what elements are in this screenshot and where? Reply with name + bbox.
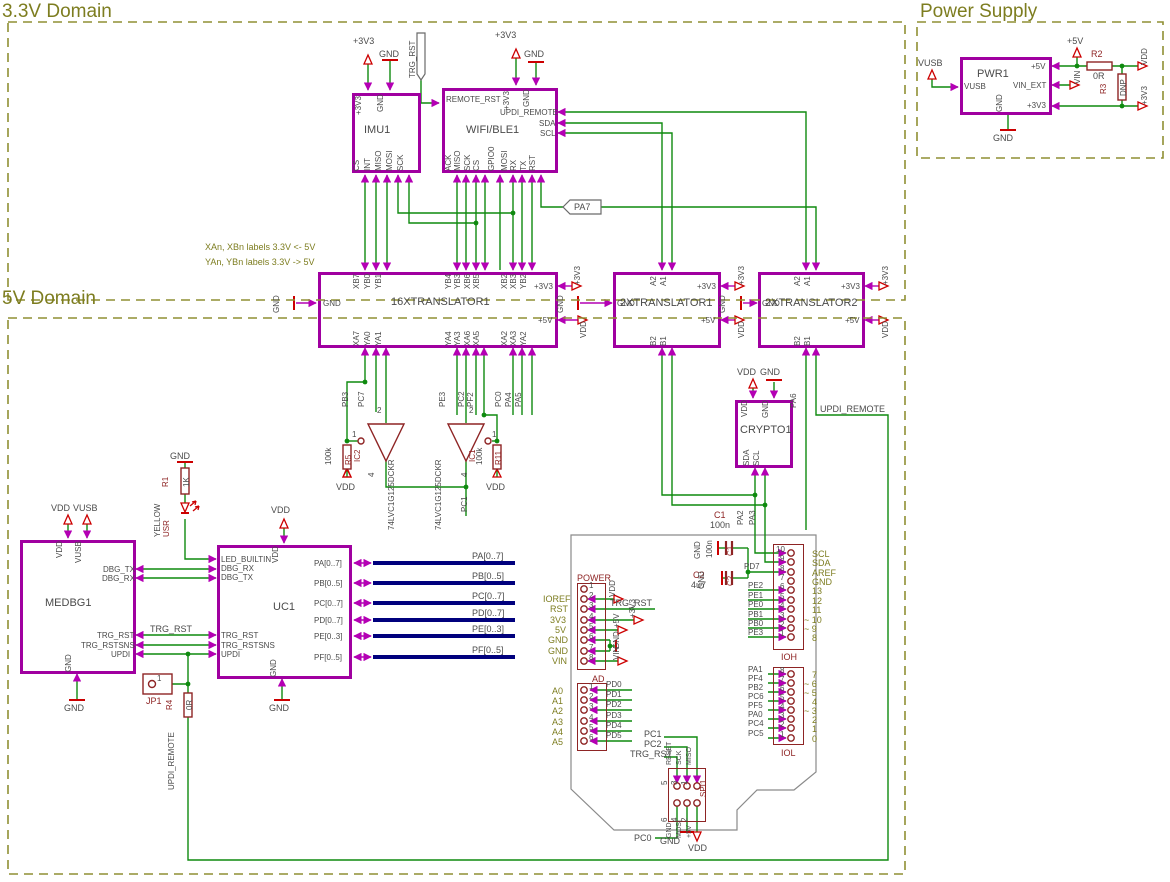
r3-ref: R3	[1099, 84, 1108, 94]
silk-gnd: GND	[548, 646, 568, 656]
trg-rst-flag-label: TRG_RST	[408, 41, 417, 78]
t16-top-pin: XB6	[463, 274, 472, 289]
power-header-ref: POWER	[577, 573, 611, 583]
pa7-flag-label: PA7	[574, 202, 590, 212]
uc-pin-pc: PC[0..7]	[314, 599, 343, 608]
t16-top-pin: YB1	[374, 274, 383, 289]
pwr-pin-gnd: GND	[995, 94, 1004, 112]
updi-remote-net-label: UPDI_REMOTE	[820, 404, 885, 414]
ioh-pin-num: 9	[780, 554, 784, 563]
silk-rst: RST	[550, 604, 568, 614]
jp1-ref: JP1	[146, 696, 162, 706]
silk-11: 11	[812, 605, 821, 615]
wifi-pin-cs: CS	[472, 160, 481, 171]
p3v3-label: +3V3	[353, 36, 374, 46]
ioh-pin-num: 8	[780, 564, 784, 573]
domain-title-5v: 5V Domain	[2, 289, 96, 309]
ic2-pin1-num: 1	[352, 430, 356, 439]
vusb-label: VUSB	[918, 58, 943, 68]
schematic-canvas: 3.3V Domain 5V Domain Power Supply XAn, …	[0, 0, 1170, 882]
imu-pin-mosi: MOSI	[385, 151, 394, 171]
uc-pin-pe: PE[0..3]	[314, 632, 342, 641]
t16-bot-pin: XA7	[352, 331, 361, 346]
led-symbol[interactable]	[181, 501, 199, 513]
t16-top-pin: XB7	[352, 274, 361, 289]
vusb-label: VUSB	[73, 503, 98, 513]
pa1-net-label: PA1	[748, 665, 763, 674]
gnd-flag-label: GND	[718, 295, 727, 313]
ioh-pin-num: 3	[780, 611, 784, 620]
gnd-label: GND	[660, 836, 680, 846]
led-ref: USR	[162, 520, 171, 537]
pwr-pin-3v3: +3V3	[1027, 101, 1046, 110]
medbg-ref: MEDBG1	[45, 597, 91, 609]
silk-a2: A2	[552, 706, 563, 716]
vdd-label: VDD	[737, 367, 756, 377]
imu-pin-sck: SCK	[396, 155, 405, 171]
t2a-pin-a1: A1	[659, 276, 668, 286]
gnd-flag-label: GND	[556, 295, 565, 313]
r5-ref: R5	[344, 455, 353, 465]
uc-pin-gnd: GND	[269, 659, 278, 677]
ioh-pin-num: 10	[776, 545, 785, 554]
silk-a4: A4	[552, 727, 563, 737]
silk-1: 1	[812, 724, 817, 734]
crypto-pin-scl: SCL	[752, 450, 761, 466]
t2b-pin-a1: A1	[803, 276, 812, 286]
t16-pin-gnd: GND	[323, 299, 341, 308]
pd5-net-label: PD5	[606, 731, 622, 740]
ad-pin-num: 1	[589, 682, 593, 691]
medbg-pin-trgrstsns: TRG_RSTSNS	[81, 641, 135, 650]
t16-bot-pin: YA2	[519, 331, 528, 346]
jp1-pad	[149, 681, 156, 688]
power-pin-num: 6	[589, 632, 593, 641]
silk-a5: A5	[552, 737, 563, 747]
pwr-pin-vinext: VIN_EXT	[1013, 81, 1046, 90]
power-pin-num: 5	[589, 622, 593, 631]
pf2-net-label: PF2	[466, 392, 475, 407]
crypto-pin-sda: SDA	[742, 450, 751, 466]
t2b-pin-5v: +5V	[845, 316, 859, 325]
pc1-net-label: PC1	[460, 496, 469, 512]
ioh-pin-num: 5	[780, 592, 784, 601]
r5-value: 100k	[324, 448, 333, 465]
vdd-label: VDD	[688, 843, 707, 853]
medbg-pin-gnd: GND	[64, 654, 73, 672]
ic2-pin4-num: 4	[367, 473, 376, 477]
p5v-flag-label: +5V	[612, 614, 621, 628]
ad-pin-num: 6	[589, 733, 593, 742]
gnd-flag-label: GND	[697, 571, 706, 589]
r2-ref: R2	[1091, 49, 1103, 59]
r1-ref: R1	[161, 477, 170, 487]
r2-value: 0R	[1093, 71, 1105, 81]
pa5-net-label: PA5	[514, 392, 523, 407]
ioh-pin-num: 7	[780, 573, 784, 582]
ad-header-ref: AD	[592, 674, 605, 684]
ic1-pin2-num: 2	[469, 406, 473, 415]
p3v3-flag-label: +3V3	[573, 266, 582, 285]
power-pin-num: 7	[589, 643, 593, 652]
bus-label-pe: PE[0..3]	[472, 624, 504, 634]
pc7-net-label: PC7	[357, 391, 366, 407]
pb1-net-label: PB1	[748, 610, 763, 619]
vdd-label: VDD	[271, 505, 290, 515]
vdd-label: VDD	[486, 482, 505, 492]
crypto-pin-gnd: GND	[761, 400, 770, 418]
t2b-pin-b2: B2	[793, 336, 802, 346]
c1-value-rot: 100n	[705, 540, 714, 558]
resistor-r2[interactable]	[1087, 62, 1112, 70]
vdd-label: VDD	[51, 503, 70, 513]
p3v3-flag-label: +3V3	[628, 599, 637, 618]
trg-rst-net-label: TRG_RST	[150, 624, 192, 634]
iol-pin-num: 1	[780, 730, 784, 739]
silk-vin: VIN	[552, 656, 567, 666]
wifi-pin-miso: MISO	[453, 151, 462, 171]
medbg-pin-vusb: VUSB	[74, 541, 83, 563]
t16-bot-pin: XA3	[509, 331, 518, 346]
medbg-pin-vdd: VDD	[55, 541, 64, 558]
gnd-flag-label: GND	[272, 295, 281, 313]
pc2-net-label: PC2	[644, 739, 662, 749]
p3v3-flag-label: +3V3	[881, 266, 890, 285]
ioh-pin-num: 6	[780, 582, 784, 591]
ioh-pin-num: 2	[780, 620, 784, 629]
power-pin-num: 2	[589, 591, 593, 600]
iol-header[interactable]	[773, 667, 804, 745]
bus-label-pd: PD[0..7]	[472, 608, 505, 618]
t16-top-pin: XB5	[472, 274, 481, 289]
power-pin-num: 1	[589, 581, 593, 590]
r11-ref: R11	[494, 451, 503, 465]
t16-top-pin: YB2	[519, 274, 528, 289]
wifi-pin-ack: ACK	[444, 155, 453, 171]
pc0-net-label: PC0	[494, 391, 503, 407]
c1-ref-rot: C1	[726, 546, 735, 556]
uc-pin-ledbuiltin: LED_BUILTIN	[221, 555, 271, 564]
pwr-pin-vusb: VUSB	[964, 82, 986, 91]
t2a-pin-b1: B1	[659, 336, 668, 346]
wifi-pin-gnd: GND	[522, 89, 531, 107]
uc-pin-pf: PF[0..5]	[314, 653, 342, 662]
ic1-pin1-num: 1	[492, 430, 496, 439]
wifi-pin-mosi: MOSI	[500, 151, 509, 171]
t2a-pin-gnd: GND	[617, 299, 635, 308]
silk-a1: A1	[552, 696, 563, 706]
pb3-net-label: PB3	[341, 392, 350, 407]
spi-pin1: 1	[680, 781, 689, 785]
t16-pin-3v3: +3V3	[534, 282, 553, 291]
wifi-ref: WIFI/BLE1	[466, 124, 519, 136]
t16-top-pin: XB3	[509, 274, 518, 289]
r1-value: 1K	[182, 477, 191, 487]
led-color: YELLOW	[153, 504, 162, 537]
wifi-pin-remote-rst: REMOTE_RST	[446, 95, 501, 104]
imu-pin-3v3: +3V3	[354, 96, 363, 115]
pb2-net-label: PB2	[748, 683, 763, 692]
c1-value: 100n	[710, 520, 730, 530]
pwr-pin-5v: +5V	[1031, 62, 1045, 71]
pe0-net-label: PE0	[748, 600, 763, 609]
uc-pin-pa: PA[0..7]	[314, 559, 342, 568]
trg-rst-net-label: TRG_RST	[630, 749, 672, 759]
t16-top-pin: YB4	[444, 274, 453, 289]
pd7-net-label: PD7	[744, 562, 760, 571]
ioh-pin-num: 1	[780, 629, 784, 638]
ioh-header-ref: IOH	[781, 652, 797, 662]
pc6-net-label: PC6	[748, 692, 764, 701]
uc-pin-trgrstsns: TRG_RSTSNS	[221, 641, 275, 650]
t2b-pin-gnd: GND	[762, 299, 780, 308]
crypto-ref: CRYPTO1	[740, 424, 792, 436]
pwr-ref: PWR1	[977, 68, 1009, 80]
crypto-pin-vdd: VDD	[740, 400, 749, 417]
wifi-pin-updi-remote: UPDI_REMOTE	[500, 108, 558, 117]
wifi-pin-scl: SCL	[540, 129, 556, 138]
part-graphics	[143, 62, 1126, 806]
bus-label-pa: PA[0..7]	[472, 551, 503, 561]
ioh-pin-num: 4	[780, 601, 784, 610]
note-xab: XAn, XBn labels 3.3V <- 5V	[205, 242, 315, 252]
power-pin-num: 4	[589, 612, 593, 621]
jp1-pin1: 1	[157, 674, 161, 683]
imu-pin-gnd: GND	[376, 94, 385, 112]
pd0-net-label: PD0	[606, 680, 622, 689]
ad-pin-num: 4	[589, 713, 593, 722]
iol-pin-num: 8	[780, 666, 784, 675]
t2a-pin-b2: B2	[649, 336, 658, 346]
vdd-flag-label: VDD	[881, 321, 890, 338]
silk-a3: A3	[552, 717, 563, 727]
gnd-label: GND	[524, 49, 544, 59]
uc-pin-pb: PB[0..5]	[314, 579, 342, 588]
ad-pin-num: 3	[589, 702, 593, 711]
vdd-flag-label: VDD	[737, 321, 746, 338]
silk-8: 8	[812, 633, 817, 643]
uc-ref: UC1	[273, 601, 295, 613]
uc-pin-vdd: VDD	[271, 546, 280, 563]
medbg-pin-trgrst: TRG_RST	[97, 631, 134, 640]
t16-bot-pin: YA3	[453, 331, 462, 346]
ic2-ref: IC2	[353, 450, 362, 462]
power-pin-num: 3	[589, 601, 593, 610]
silk-gnd: GND	[548, 635, 568, 645]
pa4-net-label: PA4	[504, 392, 513, 407]
silk-5v: 5V	[555, 625, 566, 635]
t16-top-pin: YB3	[453, 274, 462, 289]
wifi-pin-sck: SCK	[463, 155, 472, 171]
pa6-net-label: PA6	[789, 393, 798, 408]
wifi-pin-rst: RST	[528, 155, 537, 171]
silk-ioref: IOREF	[543, 594, 571, 604]
ad-pin-num: 2	[589, 692, 593, 701]
pf5-net-label: PF5	[748, 701, 763, 710]
silk-sda: SDA	[812, 558, 831, 568]
gnd-flag-label: GND	[693, 541, 702, 559]
domain-title-psu: Power Supply	[920, 2, 1037, 22]
c2-ref-rot: C2	[726, 576, 735, 586]
note-yab: YAn, YBn labels 3.3V -> 5V	[205, 257, 315, 267]
spi-sig-sck: SCK	[676, 751, 684, 765]
r3-value: DNP	[1119, 79, 1128, 96]
r11-value: 100k	[475, 448, 484, 465]
spi-pin3: 3	[670, 781, 679, 785]
p3v3-label: +3V3	[495, 30, 516, 40]
pa2-net-label: PA2	[736, 510, 745, 525]
gnd-label: GND	[269, 703, 289, 713]
t16-ref: 16XTRANSLATOR1	[391, 296, 490, 308]
t2b-pin-b1: B1	[803, 336, 812, 346]
ic2-part: 74LVC1G125DCKR	[387, 459, 396, 530]
t2b-pin-a2: A2	[793, 276, 802, 286]
wifi-pin-tx: TX	[519, 161, 528, 171]
gnd-label: GND	[64, 703, 84, 713]
medbg-pin-updi: UPDI	[111, 650, 130, 659]
vdd-flag-label: VDD	[579, 321, 588, 338]
gnd-label: GND	[760, 367, 780, 377]
t16-top-pin: YB0	[363, 274, 372, 289]
imu-pin-miso: MISO	[374, 151, 383, 171]
pa3-net-label: PA3	[748, 510, 757, 525]
medbg-pin-dbgrx: DBG_RX	[102, 574, 135, 583]
imu-ref: IMU1	[364, 124, 390, 136]
pd1-net-label: PD1	[606, 690, 622, 699]
medbg-pin-dbgtx: DBG_TX	[103, 565, 135, 574]
iol-pin-num: 2	[780, 720, 784, 729]
vin-flag-label: VIN	[1073, 71, 1082, 84]
trg-rst-flag	[417, 33, 425, 80]
vdd-flag-label: VDD	[608, 580, 617, 597]
r4-value: 0R	[185, 700, 194, 710]
ic1-pin4-num: 4	[460, 473, 469, 477]
bus-label-pb: PB[0..5]	[472, 571, 504, 581]
iol-pin-num: 3	[780, 711, 784, 720]
pe3-net-label: PE3	[438, 392, 447, 407]
vin-flag-label: VIN	[612, 647, 621, 660]
pf4-net-label: PF4	[748, 674, 763, 683]
pc0-net-label: PC0	[634, 833, 652, 843]
silk-3v3: 3V3	[550, 615, 566, 625]
bus-label-pc: PC[0..7]	[472, 591, 505, 601]
p5v-label: +5V	[1067, 36, 1083, 46]
vdd-label: VDD	[336, 482, 355, 492]
iol-pin-num: 7	[780, 675, 784, 684]
pe1-net-label: PE1	[748, 591, 763, 600]
t16-bot-pin: YA1	[374, 331, 383, 346]
uc-pin-updi: UPDI	[221, 650, 240, 659]
ic2-pin2-num: 2	[377, 406, 381, 415]
pd3-net-label: PD3	[606, 711, 622, 720]
pe3-net-label: PE3	[748, 628, 763, 637]
t2a-pin-3v3: +3V3	[697, 282, 716, 291]
uc-pin-dbgrx: DBG_RX	[221, 564, 254, 573]
ic1-oe-bubble	[485, 438, 491, 444]
power-pin-num: 8	[589, 653, 593, 662]
pa0-net-label: PA0	[748, 710, 763, 719]
spi-sig-miso: MISO	[686, 747, 694, 765]
t16-bot-pin: YA0	[363, 331, 372, 346]
pc5-net-label: PC5	[748, 729, 764, 738]
vdd-flag-label: VDD	[1140, 48, 1149, 65]
silk-0: 0	[812, 734, 817, 744]
spi-pin5: 5	[660, 781, 669, 785]
ad-pin-num: 5	[589, 723, 593, 732]
imu-pin-cs: CS	[352, 160, 361, 171]
updi-remote-net-label: UPDI_REMOTE	[167, 732, 176, 790]
pb0-net-label: PB0	[748, 619, 763, 628]
imu-pin-int: INT	[363, 158, 372, 171]
t16-bot-pin: XA5	[472, 331, 481, 346]
wifi-pin-gpio0: GPIO0	[487, 147, 496, 171]
pe2-net-label: PE2	[748, 581, 763, 590]
t2b-pin-3v3: +3V3	[841, 282, 860, 291]
ioh-header[interactable]	[773, 544, 804, 650]
ic1-part: 74LVC1G125DCKR	[434, 459, 443, 530]
t16-top-pin: XB2	[500, 274, 509, 289]
uc-pin-dbgtx: DBG_TX	[221, 573, 253, 582]
t2a-pin-5v: +5V	[701, 316, 715, 325]
t16-bot-pin: YA4	[444, 331, 453, 346]
domain-title-3v3: 3.3V Domain	[2, 2, 112, 22]
gnd-label: GND	[170, 451, 190, 461]
wifi-pin-sda: SDA	[539, 119, 555, 128]
p3v3-flag-label: +3V3	[1140, 86, 1149, 105]
pd4-net-label: PD4	[606, 721, 622, 730]
pc2-net-label: PC2	[457, 391, 466, 407]
silk-13: 13	[812, 586, 822, 596]
iol-pin-num: 6	[780, 684, 784, 693]
t16-bot-pin: XA6	[463, 331, 472, 346]
pc1-net-label: PC1	[644, 729, 662, 739]
pd2-net-label: PD2	[606, 700, 622, 709]
wifi-pin-rx: RX	[509, 160, 518, 171]
buffer-ic2[interactable]	[368, 424, 404, 461]
pc4-net-label: PC4	[748, 719, 764, 728]
iol-pin-num: 5	[780, 693, 784, 702]
ic2-oe-bubble	[358, 438, 364, 444]
spi-header-ref: SPI1	[699, 780, 708, 797]
c1-ref: C1	[714, 510, 726, 520]
bus-label-pf: PF[0..5]	[472, 645, 504, 655]
silk-a0: A0	[552, 686, 563, 696]
iol-header-ref: IOL	[781, 748, 796, 758]
p3v3-flag-label: +3V3	[737, 266, 746, 285]
spi-pin6: 6	[660, 818, 669, 822]
iol-pin-num: 4	[780, 702, 784, 711]
r4-ref: R4	[165, 700, 174, 710]
t16-pin-5v: +5V	[538, 316, 552, 325]
t16-bot-pin: XA2	[500, 331, 509, 346]
gnd-label: GND	[993, 133, 1013, 143]
spi-sig-vcc: +5V	[686, 825, 694, 838]
uc-pin-trgrst: TRG_RST	[221, 631, 258, 640]
uc-pin-pd: PD[0..7]	[314, 616, 343, 625]
gnd-label: GND	[379, 49, 399, 59]
t2a-pin-a2: A2	[649, 276, 658, 286]
